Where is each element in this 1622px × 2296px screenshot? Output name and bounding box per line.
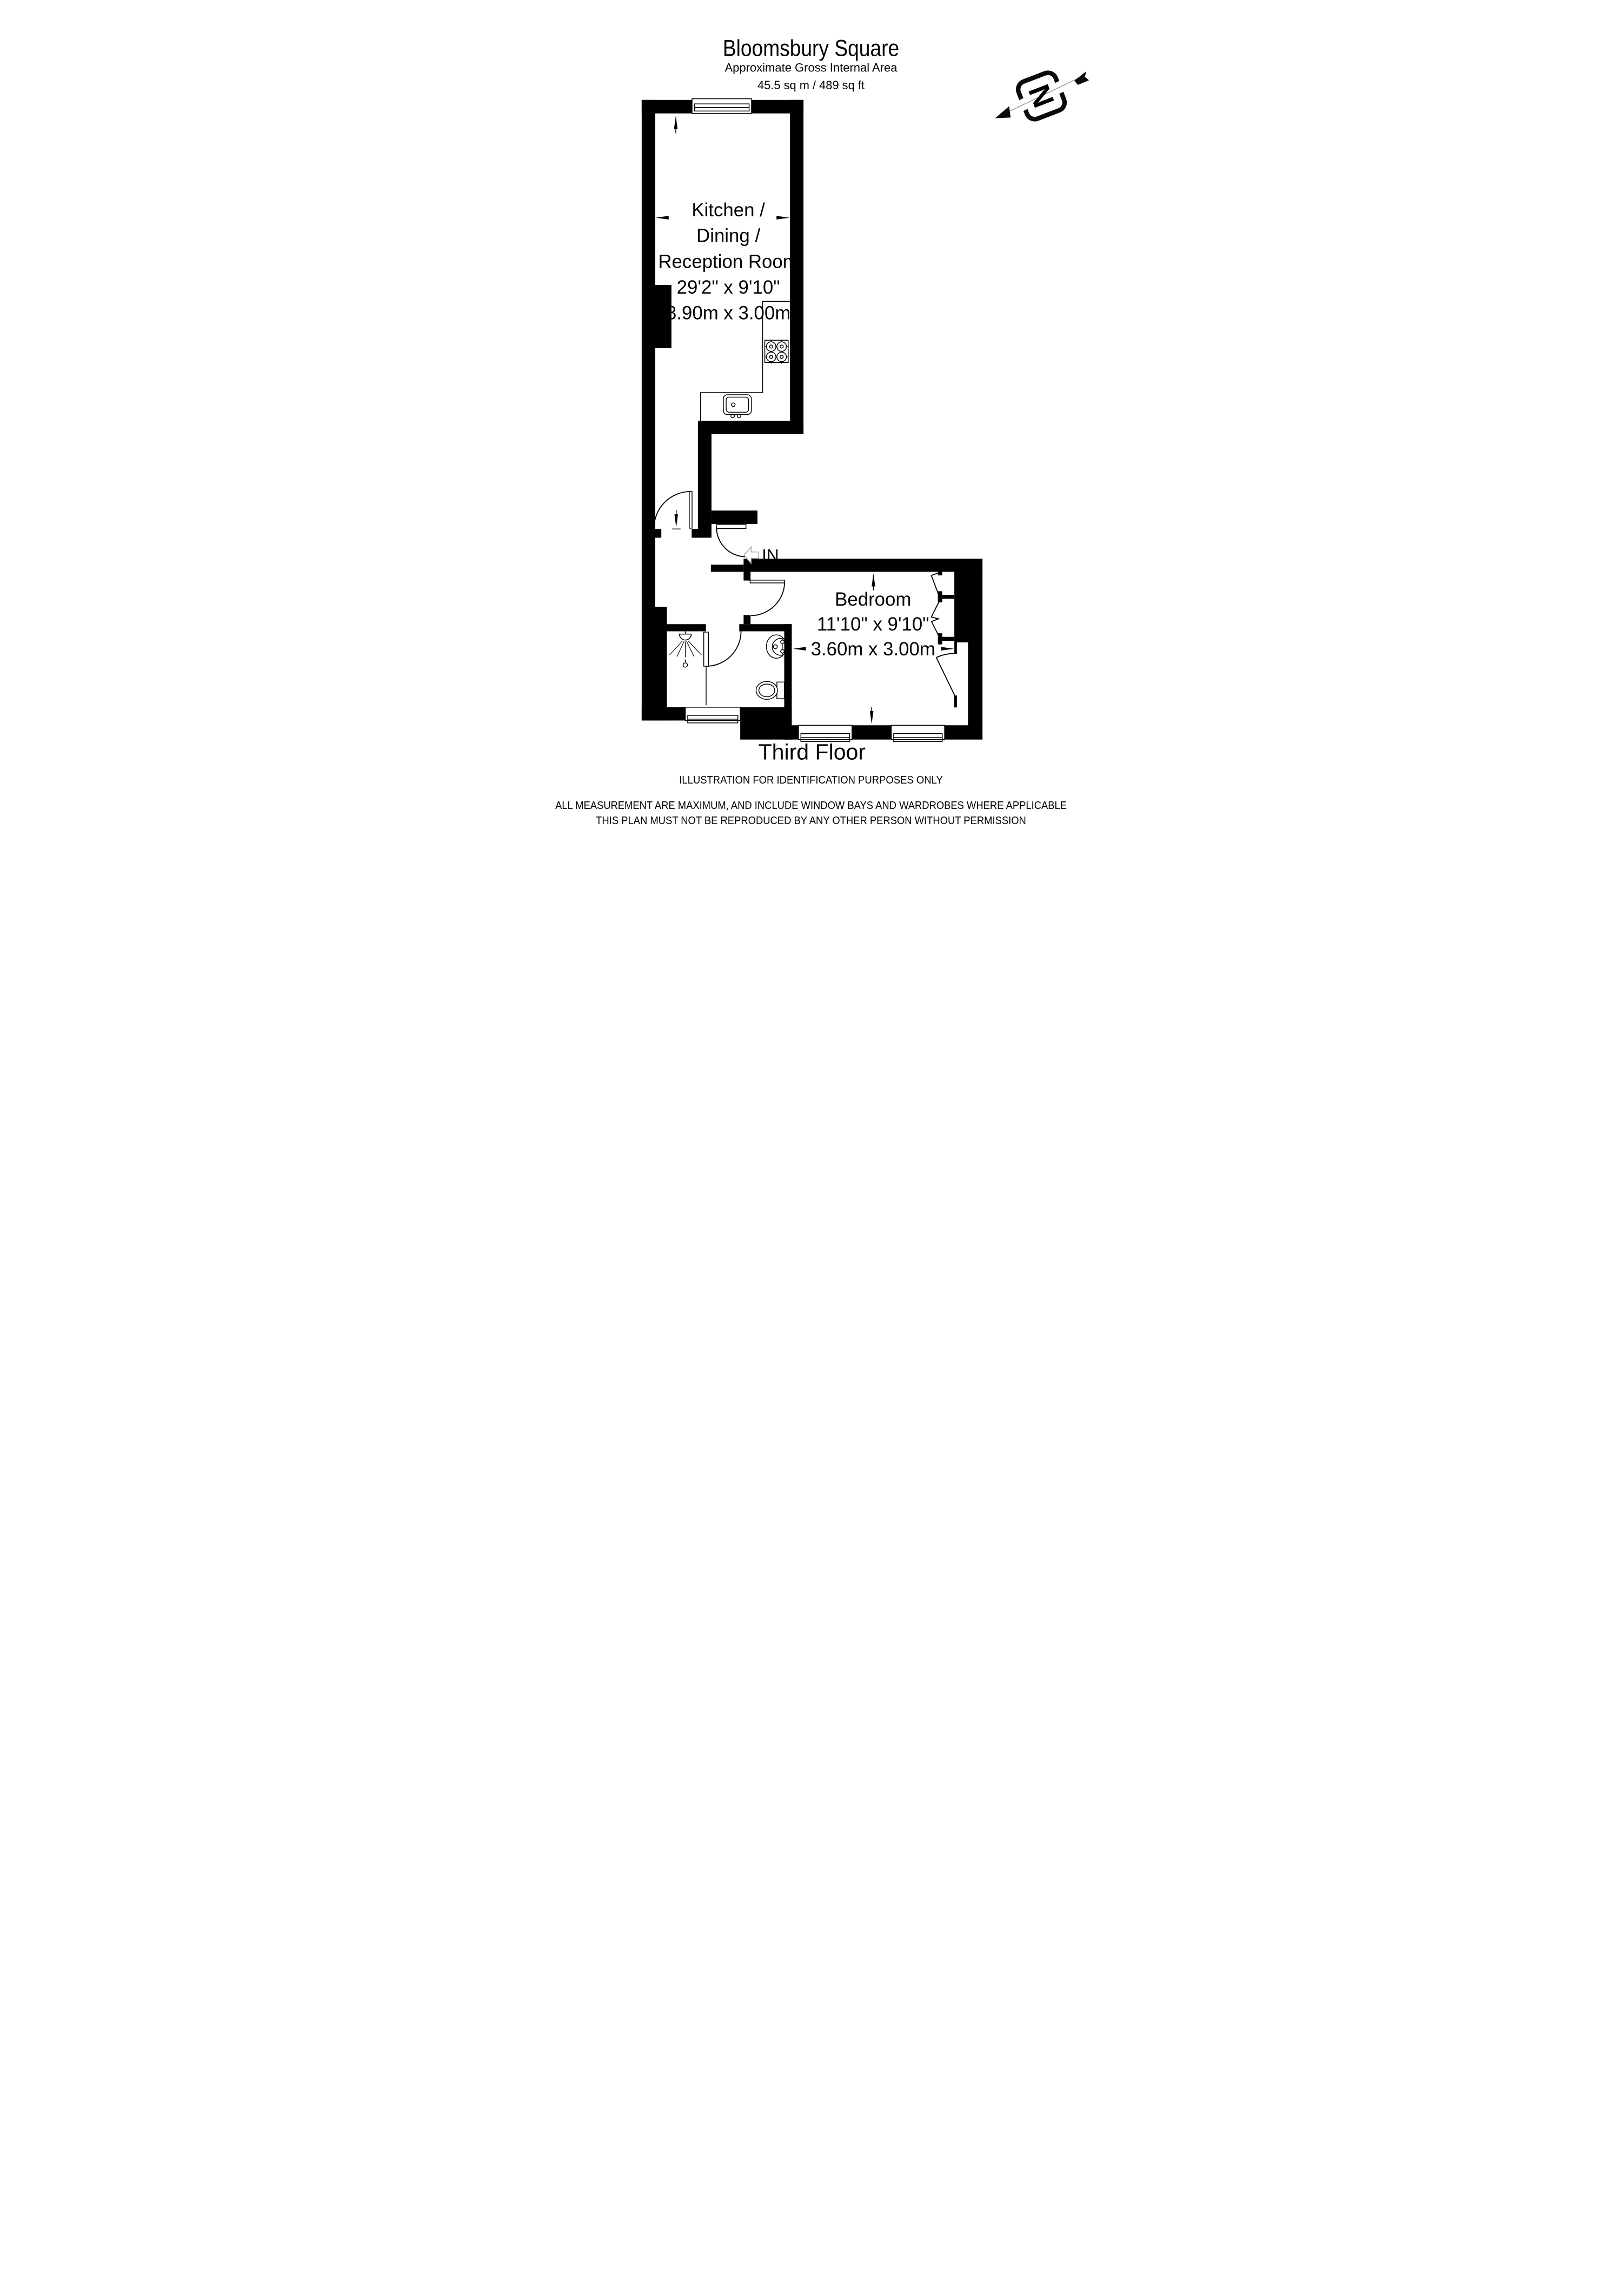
entry-door [716, 525, 746, 556]
bedroom-door [750, 580, 785, 616]
wall-bathroom-top-right [739, 624, 792, 631]
footer: Third Floor ILLUSTRATION FOR IDENTIFICAT… [555, 739, 1067, 827]
compass-icon: N [987, 59, 1096, 133]
bedroom-arrow-up-icon [872, 573, 875, 586]
bathroom-door [704, 631, 741, 705]
wall-bathroom-top-left [667, 624, 706, 631]
wall-vestibule [711, 565, 743, 572]
door-nub-left [655, 529, 661, 537]
kitchen-label-line2: Dining / [696, 225, 760, 247]
kitchen-arrow-right-icon [776, 216, 789, 220]
wall-bedroom-top [743, 559, 982, 572]
kitchen-arrow-up-icon [674, 116, 678, 129]
bedroom-window-right [891, 725, 945, 741]
wardrobe-nub [938, 572, 942, 575]
wall-entry-stub [712, 510, 757, 524]
shower-icon [669, 631, 701, 667]
wall-bottom-corner [740, 707, 792, 740]
wardrobe-bifold-door [932, 601, 939, 636]
floor-label: Third Floor [759, 739, 866, 764]
wall-right-lower [968, 642, 982, 726]
bedroom-arrow-left-icon [793, 647, 806, 651]
disclaimer-line1: ILLUSTRATION FOR IDENTIFICATION PURPOSES… [679, 774, 943, 786]
hob-icon [765, 340, 788, 363]
wall-kitchen-bottom [698, 421, 803, 434]
disclaimer-line2: ALL MEASUREMENT ARE MAXIMUM, AND INCLUDE… [555, 799, 1067, 812]
wall-bedroom-bottom-a [785, 725, 799, 739]
bathroom-window [686, 707, 741, 723]
bedroom-door-jamb-top [743, 572, 750, 580]
bedroom-dimensions-imperial: 11'10" x 9'10" [817, 614, 929, 635]
wall-bedroom-bottom-c [945, 725, 982, 739]
wardrobe-door-panel [932, 573, 939, 596]
wall-hall-right [698, 434, 712, 537]
page-subtitle: Approximate Gross Internal Area [725, 61, 898, 75]
closet-door-arc [936, 654, 954, 658]
kitchen-label-line1: Kitchen / [692, 200, 765, 221]
closet-jamb-top [954, 642, 957, 654]
entry-label: IN [762, 546, 779, 565]
wall-bedroom-bottom-b [852, 725, 892, 739]
closet-door-leaf [936, 658, 955, 696]
wardrobe-divider-bar2 [938, 637, 954, 641]
kitchen-dimensions-metric: 8.90m x 3.00m [666, 303, 790, 324]
bedroom-label: Bedroom [835, 589, 911, 610]
disclaimer-line3: THIS PLAN MUST NOT BE REPRODUCED BY ANY … [596, 814, 1026, 827]
header: Bloomsbury Square Approximate Gross Inte… [723, 35, 899, 92]
toilet-icon [756, 681, 784, 699]
kitchen-sink-icon [723, 395, 752, 418]
page-title: Bloomsbury Square [723, 35, 899, 61]
kitchen-arrow-down-icon [674, 514, 678, 527]
bedroom-window-left [799, 725, 852, 741]
gross-area-value: 45.5 sq m / 489 sq ft [757, 78, 865, 92]
wall-wardrobe-back [954, 572, 982, 642]
kitchen-label-line3: Reception Room [658, 251, 798, 272]
kitchen-arrow-left-icon [656, 216, 669, 220]
bedroom-door-jamb-bottom [743, 615, 750, 624]
wardrobe-nub [938, 641, 942, 645]
wall-bathroom-bottom [642, 707, 686, 721]
floor-plan: Bloomsbury Square Approximate Gross Inte… [514, 0, 1108, 842]
kitchen-window [692, 99, 752, 114]
door-nub-right [692, 529, 699, 537]
kitchen-dimensions-imperial: 29'2" x 9'10" [677, 277, 780, 298]
bedroom-arrow-right-icon [941, 647, 954, 651]
basin-icon [767, 635, 787, 658]
wardrobe-divider-bar1 [938, 595, 954, 599]
wall-left-bathroom [642, 607, 667, 720]
bedroom-dimensions-metric: 3.60m x 3.00m [811, 639, 935, 660]
hall-door [654, 492, 692, 528]
wardrobe-doors [932, 573, 955, 696]
wall-left [642, 100, 655, 607]
floorplan-page: Bloomsbury Square Approximate Gross Inte… [514, 0, 1108, 842]
bathroom-fixtures [669, 631, 786, 699]
closet-jamb-bottom [954, 695, 957, 707]
bedroom-arrow-down-icon [870, 711, 874, 724]
